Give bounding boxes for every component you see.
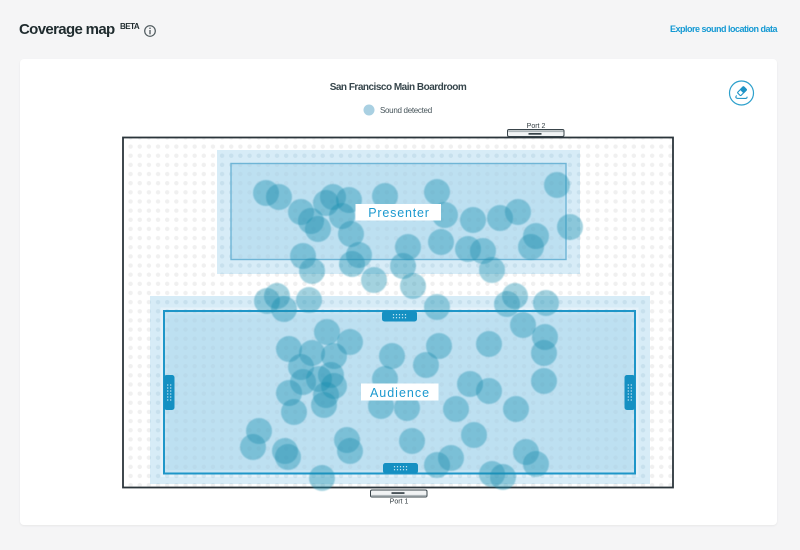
svg-text:Port 1: Port 1 xyxy=(390,499,409,506)
svg-text:Presenter: Presenter xyxy=(368,206,429,220)
svg-text:Audience: Audience xyxy=(370,386,430,400)
svg-text:San Francisco Main Boardroom: San Francisco Main Boardroom xyxy=(330,82,467,93)
svg-text:Port 2: Port 2 xyxy=(527,123,546,130)
svg-text:Sound detected: Sound detected xyxy=(380,106,432,115)
